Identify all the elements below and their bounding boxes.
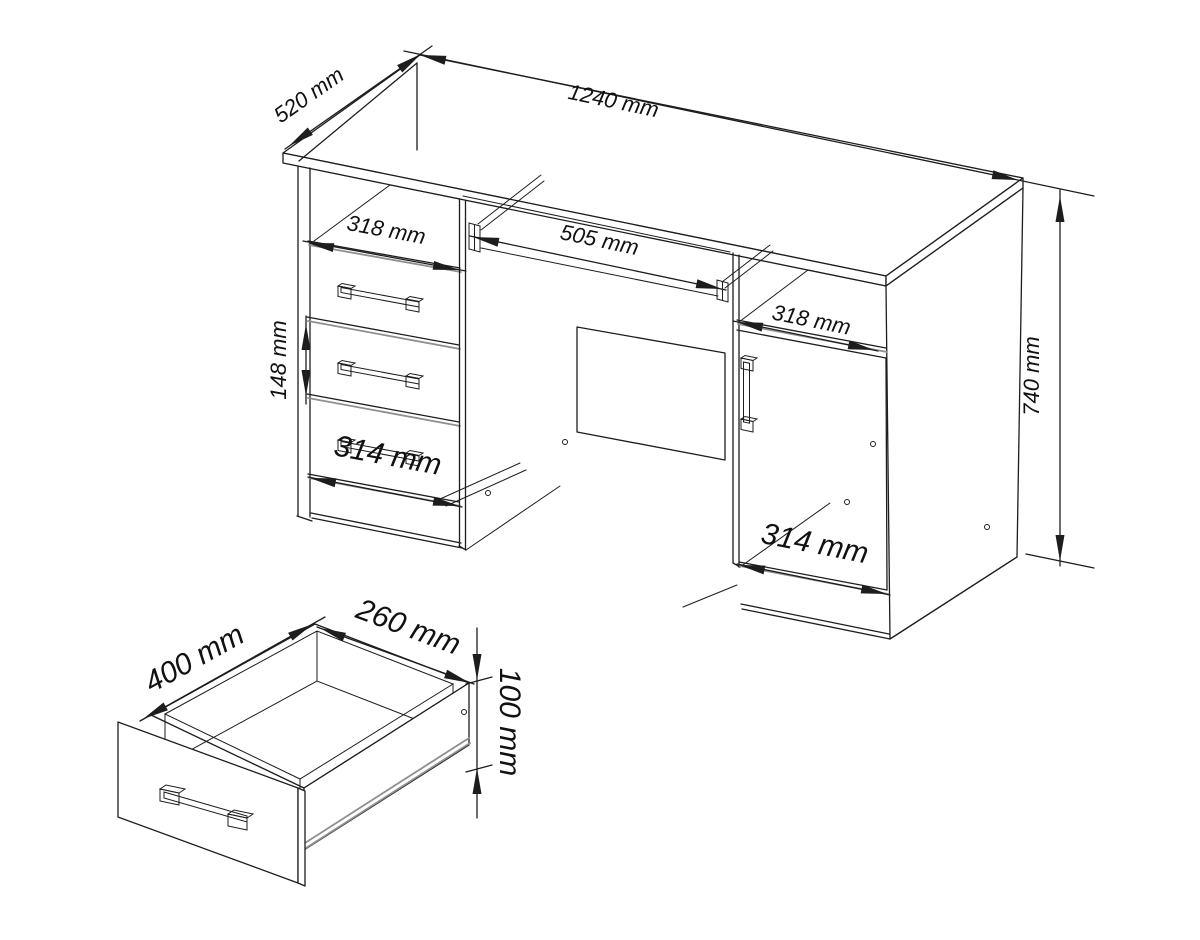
desk-tabletop <box>283 55 1023 286</box>
dim-label-drawer-height: 148 mm <box>266 320 291 399</box>
technical-drawing-page: 520 mm 1240 mm 318 mm 505 mm 318 mm 148 … <box>0 0 1200 940</box>
dim-label-left-opening: 318 mm <box>345 210 428 249</box>
dim-label-left-front-width: 314 mm <box>331 429 444 481</box>
left-pedestal <box>307 185 560 550</box>
door-handle <box>741 356 757 433</box>
drawer-handle-1 <box>338 284 423 313</box>
drawer-handle-2 <box>338 361 423 390</box>
desk-isometric-view: 520 mm 1240 mm 318 mm 505 mm 318 mm 148 … <box>266 46 1094 639</box>
drawer-detail-view: 400 mm 260 mm 100 mm <box>118 592 526 886</box>
dim-label-drawer-height: 100 mm <box>493 668 526 776</box>
back-panel <box>577 327 725 460</box>
dim-label-right-front-width: 314 mm <box>758 517 871 570</box>
dim-label-desk-height: 740 mm <box>1019 336 1044 415</box>
furniture-dimension-drawing: 520 mm 1240 mm 318 mm 505 mm 318 mm 148 … <box>0 0 1200 940</box>
